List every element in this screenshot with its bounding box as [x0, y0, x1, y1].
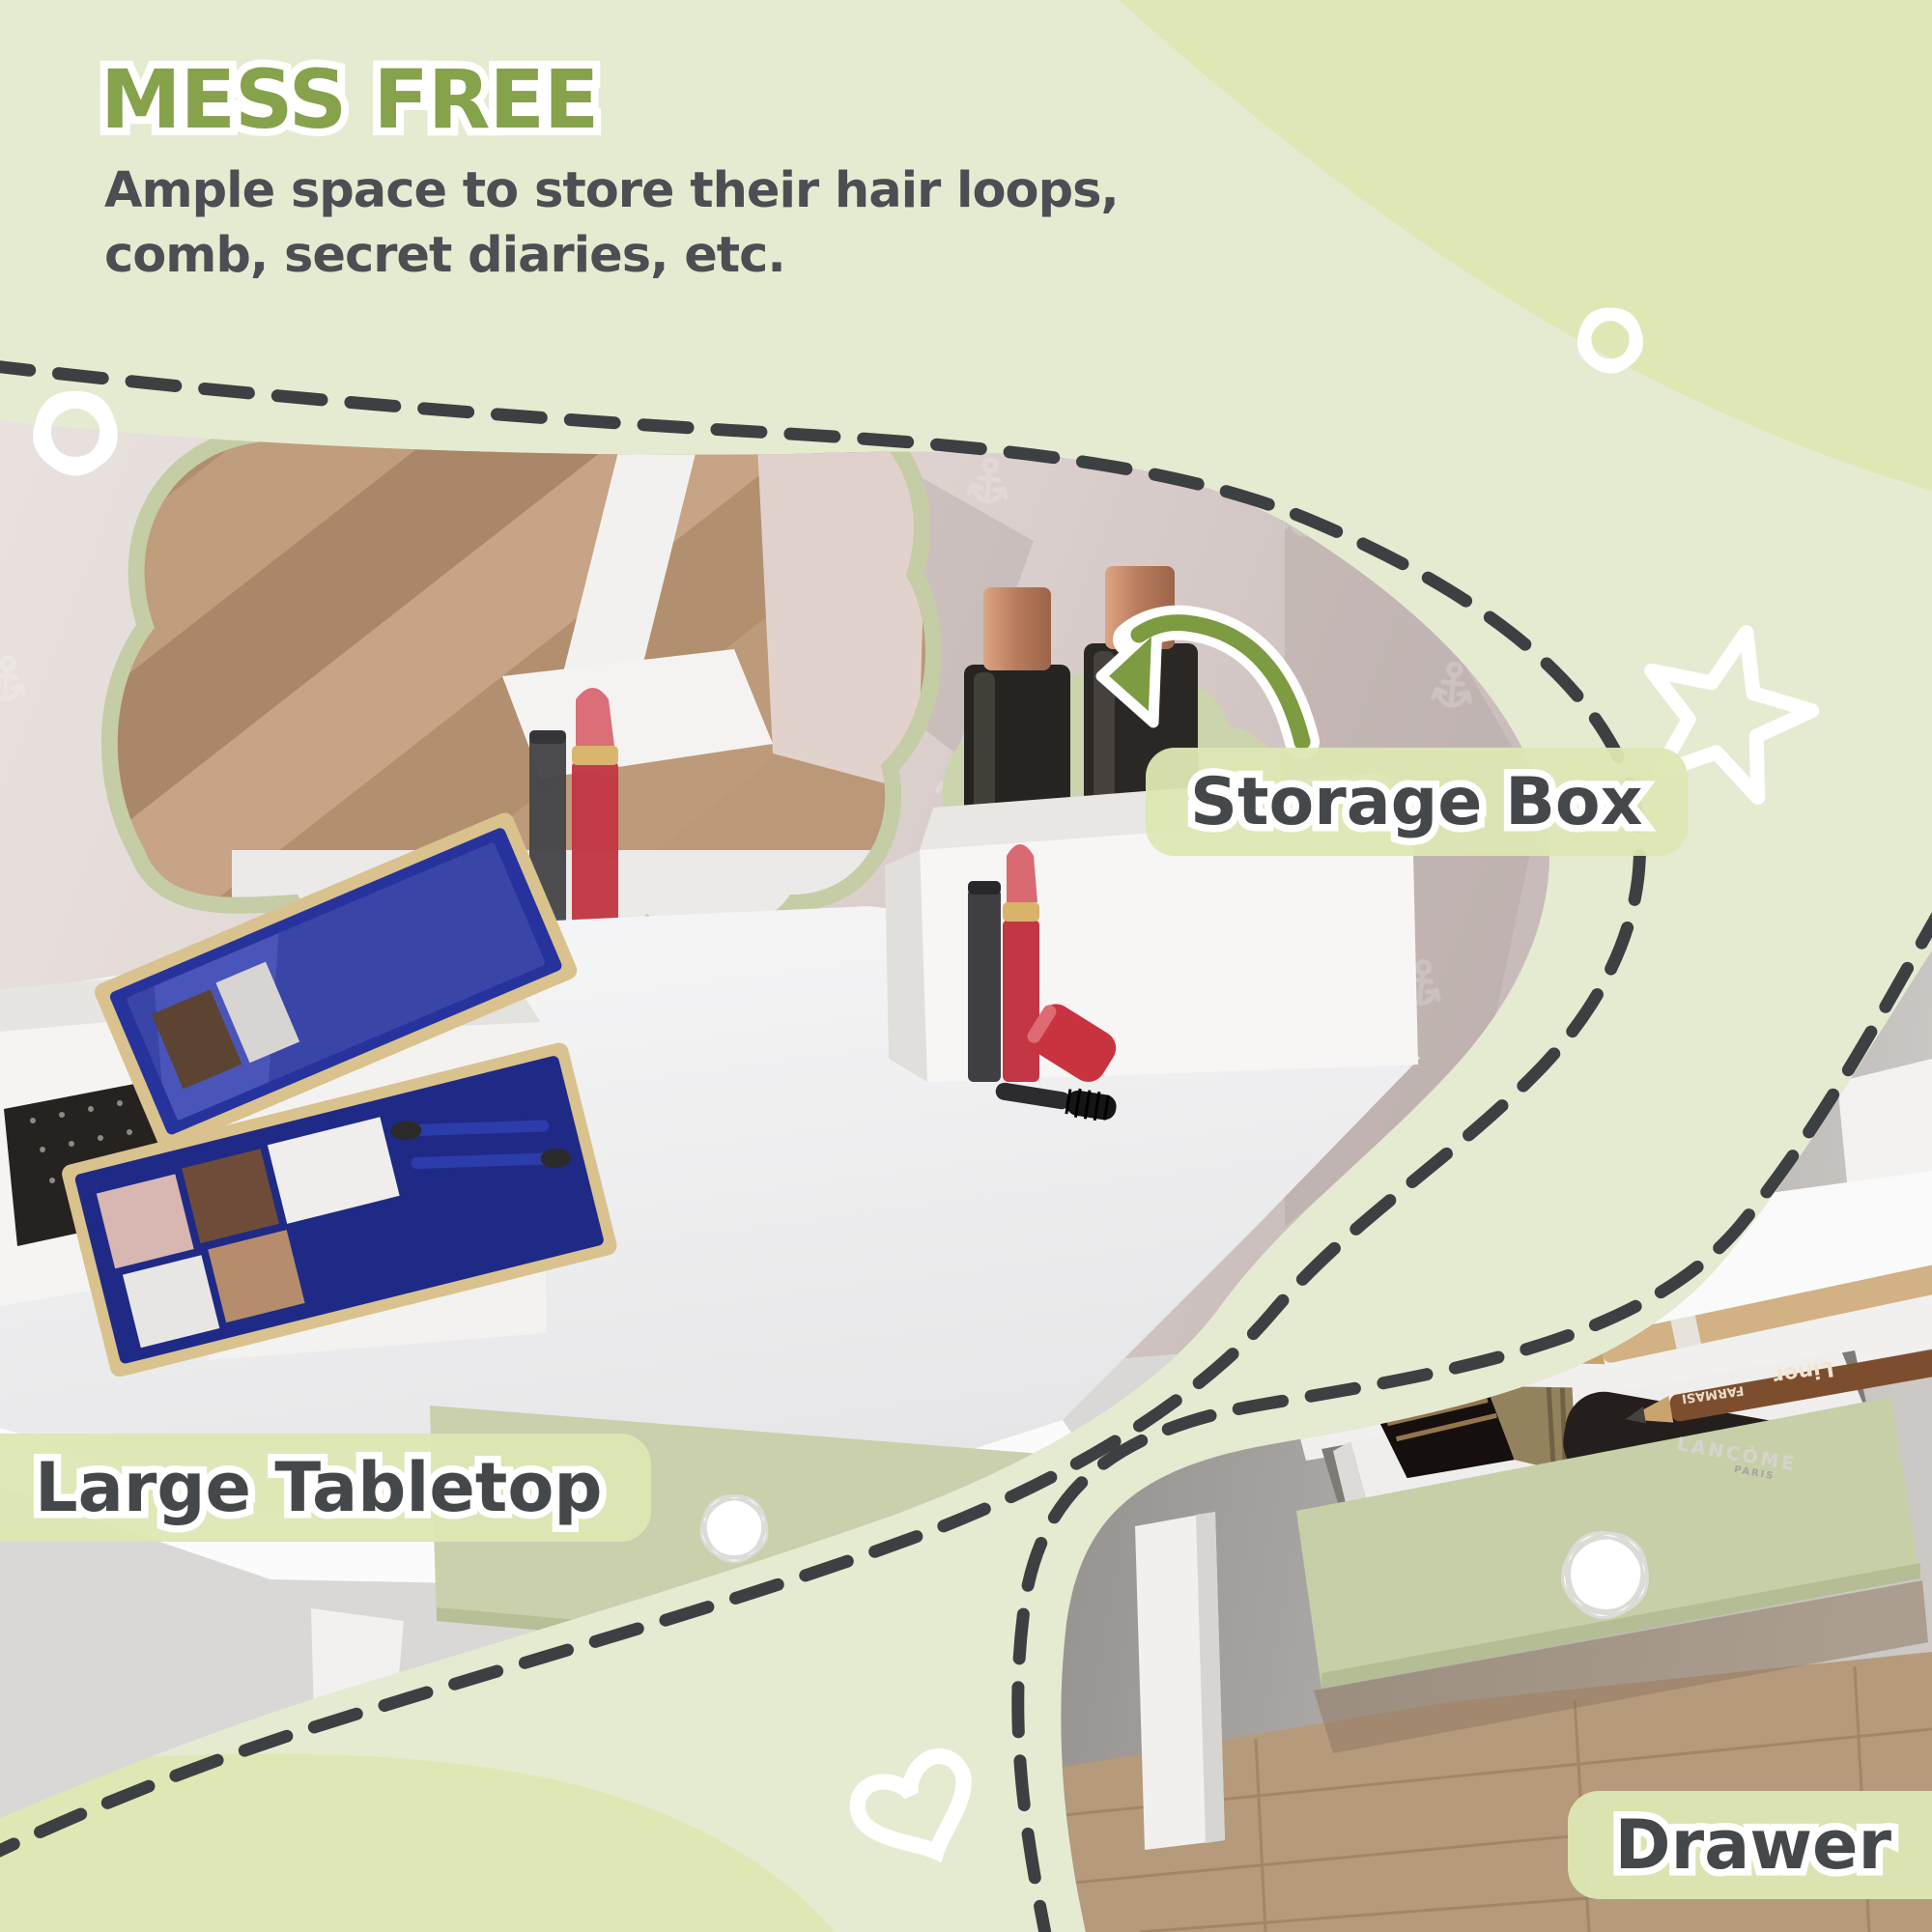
- product-infographic: MESS FREE Ample space to store their hai…: [0, 0, 1932, 1932]
- scene-graphic: [0, 0, 1932, 1932]
- description-line: comb, secret diaries, etc.: [104, 223, 1119, 288]
- callout-drawer: Drawer: [1568, 1791, 1932, 1899]
- callout-label: Storage Box: [1190, 764, 1643, 840]
- callout-label: Drawer: [1614, 1805, 1891, 1885]
- callout-large-tabletop: Large Tabletop: [0, 1434, 651, 1542]
- description-line: Ample space to store their hair loops,: [104, 158, 1119, 223]
- flower-knob: [701, 1495, 768, 1562]
- callout-storage-box: Storage Box: [1146, 748, 1688, 856]
- page-title: MESS FREE: [100, 52, 598, 147]
- page-description: Ample space to store their hair loops, c…: [104, 158, 1119, 288]
- callout-label: Large Tabletop: [35, 1448, 603, 1527]
